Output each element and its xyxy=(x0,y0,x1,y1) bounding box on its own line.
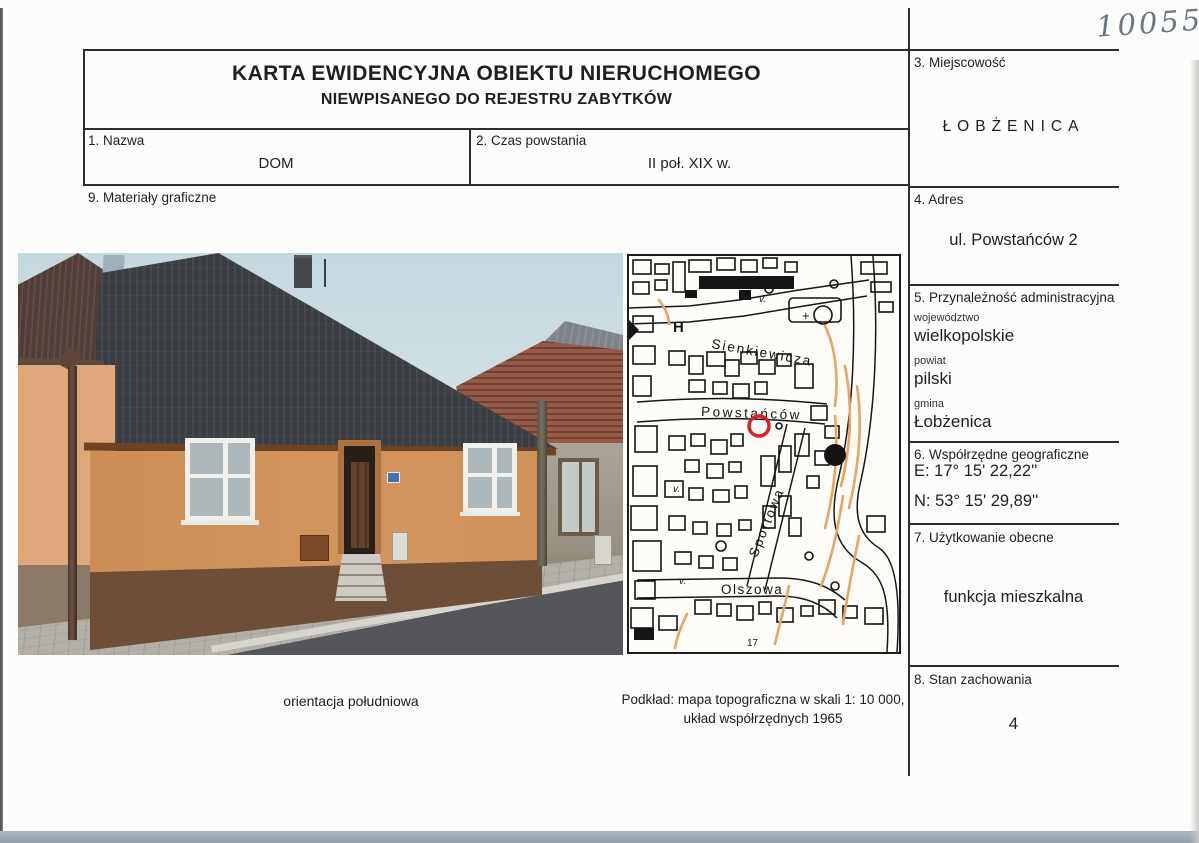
photo-caption: orientacja południowa xyxy=(241,692,461,711)
rule-under-miejscowosc xyxy=(908,186,1119,188)
field-uzytkowanie-label: 7. Użytkowanie obecne xyxy=(914,530,1054,545)
map-symbol-v2: v. xyxy=(673,484,680,495)
photo-window-right xyxy=(463,443,517,513)
coord-n: N: 53° 15' 29,89'' xyxy=(914,492,1038,511)
rule-under-adres xyxy=(908,284,1119,286)
photo-entrance-steps xyxy=(335,554,387,601)
map-caption: Podkład: mapa topograficzna w skali 1: 1… xyxy=(617,690,909,728)
photo-neighbor-window xyxy=(558,458,599,536)
photo-cellar-hatch xyxy=(300,535,329,561)
card-title: KARTA EWIDENCYJNA OBIEKTU NIERUCHOMEGO xyxy=(83,62,910,86)
photo-window-right-sill xyxy=(460,512,520,516)
map-church-cross: + xyxy=(802,308,810,323)
field-adres-label: 4. Adres xyxy=(914,192,964,207)
photo-window-left xyxy=(185,438,255,521)
photo-front-door xyxy=(338,440,381,554)
map-symbol-v3: v. xyxy=(679,576,686,587)
rule-under-uzytkowanie xyxy=(908,665,1119,667)
field-czas-label: 2. Czas powstania xyxy=(476,133,586,148)
map-caption-line1: Podkład: mapa topograficzna w skali 1: 1… xyxy=(617,690,909,709)
map-house-number: 17 xyxy=(747,638,759,649)
photo-utility-box-2 xyxy=(594,535,612,565)
field-uzytkowanie-value: funkcja mieszkalna xyxy=(908,588,1119,607)
coord-e: E: 17° 15' 22,22'' xyxy=(914,462,1037,481)
map-black-dot xyxy=(824,444,846,466)
field-stan-label: 8. Stan zachowania xyxy=(914,672,1032,687)
photo-antenna xyxy=(324,259,326,287)
field-wspolrzedne-label: 6. Współrzędne geograficzne xyxy=(914,447,1089,462)
field-miejscowosc-label: 3. Miejscowość xyxy=(914,55,1006,70)
scan-edge-bottom xyxy=(0,831,1199,843)
map-canvas: + H v. v. v. 17 Sienkiewicza Powstańców … xyxy=(629,256,899,652)
scanned-record-card: 10055 KARTA EWIDENCYJNA OBIEKTU NIERUCHO… xyxy=(0,0,1199,843)
field-stan-value: 4 xyxy=(908,714,1119,734)
scan-edge-right xyxy=(1190,60,1199,843)
field-materialy-label: 9. Materiały graficzne xyxy=(88,190,216,205)
photo-house-number-plaque xyxy=(387,472,400,483)
photo-downpipe-left xyxy=(68,366,77,640)
rule-under-wspolrzedne xyxy=(908,523,1119,525)
handwritten-number: 10055 xyxy=(1095,2,1199,44)
photo-window-left-sill xyxy=(181,520,259,525)
rule-top xyxy=(83,49,1119,51)
powiat-label: powiat xyxy=(914,355,946,367)
map-symbol-v1: v. xyxy=(759,294,766,305)
field-miejscowosc-value: ŁOBŻENICA xyxy=(908,118,1119,136)
rule-under-title xyxy=(83,128,910,130)
wojewodztwo-value: wielkopolskie xyxy=(914,326,1014,346)
card-subtitle: NIEWPISANEGO DO REJESTRU ZABYTKÓW xyxy=(83,91,910,109)
map-street-olszowa: Olszowa xyxy=(721,582,783,597)
map-caption-line2: układ współrzędnych 1965 xyxy=(617,709,909,728)
topographic-map: + H v. v. v. 17 Sienkiewicza Powstańców … xyxy=(627,254,901,654)
field-nazwa-value: DOM xyxy=(83,155,469,172)
photo-utility-box xyxy=(392,532,408,561)
photo-chimney xyxy=(294,255,312,288)
scan-edge-left xyxy=(0,8,3,834)
map-symbol-h: H xyxy=(673,319,684,336)
gmina-value: Łobżenica xyxy=(914,412,992,432)
house-photo xyxy=(18,253,623,655)
powiat-value: pilski xyxy=(914,369,952,389)
rule-under-fields xyxy=(83,184,910,186)
wojewodztwo-label: województwo xyxy=(914,312,979,324)
rule-under-przynaleznosc xyxy=(908,441,1119,443)
photo-downpipe-right xyxy=(537,401,547,566)
field-nazwa-label: 1. Nazwa xyxy=(88,133,144,148)
map-street-sienkiewicza: Sienkiewicza xyxy=(710,336,813,368)
field-przynaleznosc-label: 5. Przynależność administracyjna xyxy=(914,290,1114,305)
gmina-label: gmina xyxy=(914,398,944,410)
field-adres-value: ul. Powstańców 2 xyxy=(908,231,1119,250)
field-czas-value: II poł. XIX w. xyxy=(469,155,910,172)
